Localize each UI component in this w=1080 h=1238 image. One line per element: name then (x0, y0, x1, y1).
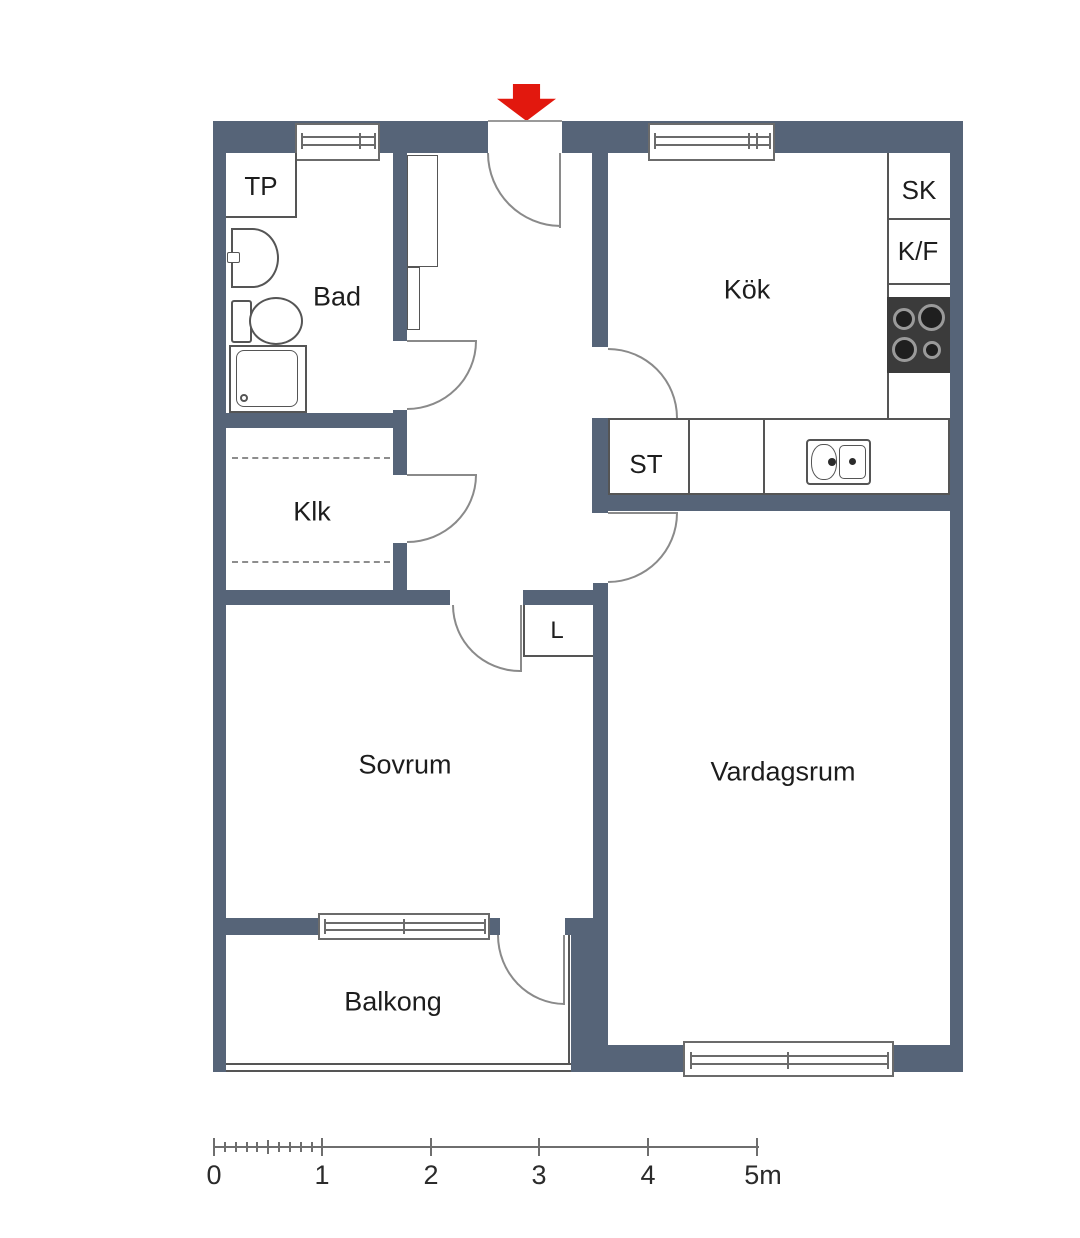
toilet-bowl (249, 297, 303, 345)
window-vardagsrum (683, 1041, 894, 1077)
scale-tick-minor (289, 1142, 291, 1152)
scale-bar-line (213, 1146, 759, 1148)
scale-tick-minor (246, 1142, 248, 1152)
entrance-door-arc (487, 153, 561, 227)
scale-label-1: 1 (314, 1160, 329, 1191)
scale-label-3: 3 (531, 1160, 546, 1191)
scale-tick-minor (267, 1140, 269, 1154)
balkong-railing-right (568, 935, 570, 1063)
kok-door-arc (608, 348, 678, 418)
sovrum-door-arc (452, 605, 520, 672)
hall-wardrobe (407, 155, 438, 267)
scale-tick-major (756, 1138, 758, 1156)
hall-wardrobe-small (407, 267, 420, 330)
label-balkong: Balkong (344, 989, 442, 1016)
klk-door-leaf (407, 474, 477, 476)
scale-tick-minor (224, 1142, 226, 1152)
wall-kok-vardagsrum (592, 495, 950, 511)
label-tp: TP (244, 173, 277, 199)
stove (887, 297, 950, 373)
bad-door-arc (407, 341, 477, 410)
vardagsrum-door-arc (608, 513, 678, 583)
wall-bad-hall-upper (393, 153, 407, 341)
vardagsrum-door-leaf (608, 512, 678, 514)
floor-plan: TP Bad Klk Kök SK K/F ST L Sovrum Vardag… (0, 0, 1080, 1238)
balkong-door-leaf (563, 935, 565, 1005)
klk-door-arc (407, 475, 477, 543)
scale-label-2: 2 (423, 1160, 438, 1191)
cabinet-divider-sk (887, 218, 950, 220)
scale-label-0: 0 (206, 1160, 221, 1191)
window-sovrum (318, 913, 490, 940)
wall-sovrum-bottom-right (565, 918, 608, 935)
balkong-railing-bottom (226, 1063, 571, 1072)
klk-shelf-line-top (232, 457, 390, 459)
wall-bad-bottom (226, 413, 407, 428)
label-bad: Bad (313, 284, 361, 311)
wall-sovrum-top (213, 590, 450, 605)
label-kf: K/F (898, 238, 938, 264)
bad-door-leaf (407, 340, 477, 342)
shower-drain (240, 394, 248, 402)
window-kok (648, 123, 775, 161)
scale-tick-major (538, 1138, 540, 1156)
label-l: L (550, 619, 563, 643)
cabinet-divider-kf (887, 283, 950, 285)
entrance-arrow-icon (497, 84, 556, 121)
label-kok: Kök (724, 277, 771, 304)
scale-tick-minor (256, 1142, 258, 1152)
kitchen-sink-faucet (828, 458, 836, 466)
stove-burner (923, 341, 941, 359)
sovrum-door-leaf (520, 605, 522, 672)
scale-tick-minor (278, 1142, 280, 1152)
label-klk: Klk (293, 499, 331, 526)
wall-sovrum-bottom-mid (490, 918, 500, 935)
label-sk: SK (902, 177, 937, 203)
window-bad (295, 123, 380, 161)
balkong-door-arc (497, 935, 565, 1005)
wall-hall-kok (592, 153, 608, 347)
scale-tick-minor (235, 1142, 237, 1152)
bathroom-sink-tap (227, 252, 240, 263)
scale-tick-minor (300, 1142, 302, 1152)
scale-tick-major (430, 1138, 432, 1156)
stove-burner (893, 308, 915, 330)
wall-sovrum-vardagsrum (593, 583, 608, 935)
kitchen-sink-drain (849, 458, 856, 465)
scale-label-4: 4 (640, 1160, 655, 1191)
counter-divider-2 (763, 420, 765, 493)
scale-tick-major (213, 1138, 215, 1156)
stove-burner (918, 304, 945, 331)
scale-tick-major (647, 1138, 649, 1156)
scale-label-5m: 5m (744, 1160, 782, 1191)
label-st: ST (629, 451, 662, 477)
wall-sovrum-bottom-left (226, 918, 318, 935)
entrance-threshold (488, 120, 562, 122)
scale-tick-minor (311, 1142, 313, 1152)
entrance-door-leaf (559, 153, 561, 228)
klk-shelf-line-bottom (232, 561, 390, 563)
counter-divider-1 (688, 420, 690, 493)
scale-tick-major (321, 1138, 323, 1156)
label-vardagsrum: Vardagsrum (710, 759, 855, 786)
wall-balkong-vardagsrum (571, 935, 608, 1072)
label-sovrum: Sovrum (358, 752, 451, 779)
stove-burner (892, 337, 917, 362)
wall-right (950, 121, 963, 1072)
